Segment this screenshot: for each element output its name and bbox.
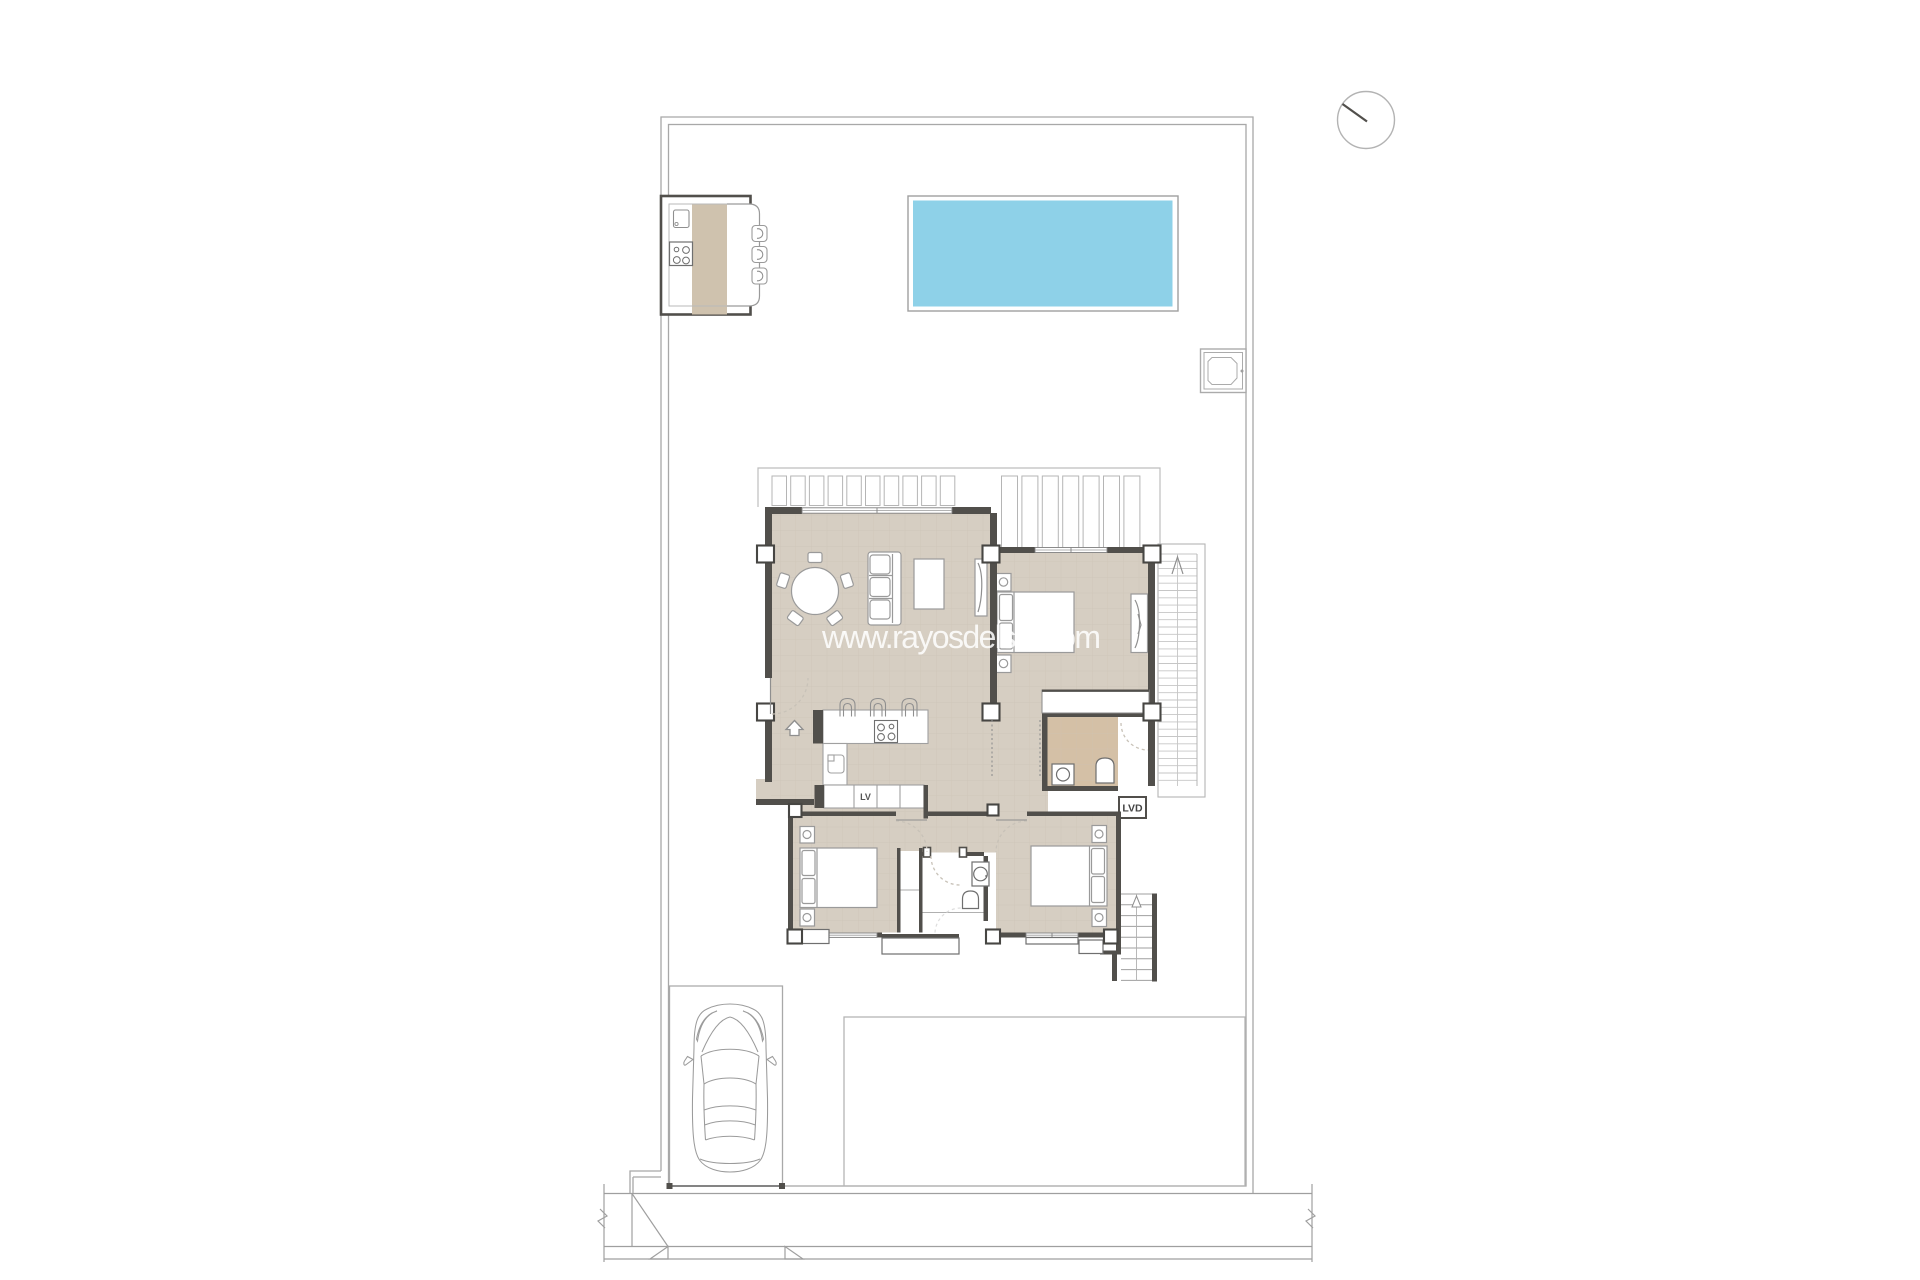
- svg-text:LV: LV: [860, 792, 871, 802]
- svg-text:www.rayosdelsol.com: www.rayosdelsol.com: [821, 619, 1102, 655]
- svg-text:LVD: LVD: [1122, 803, 1143, 815]
